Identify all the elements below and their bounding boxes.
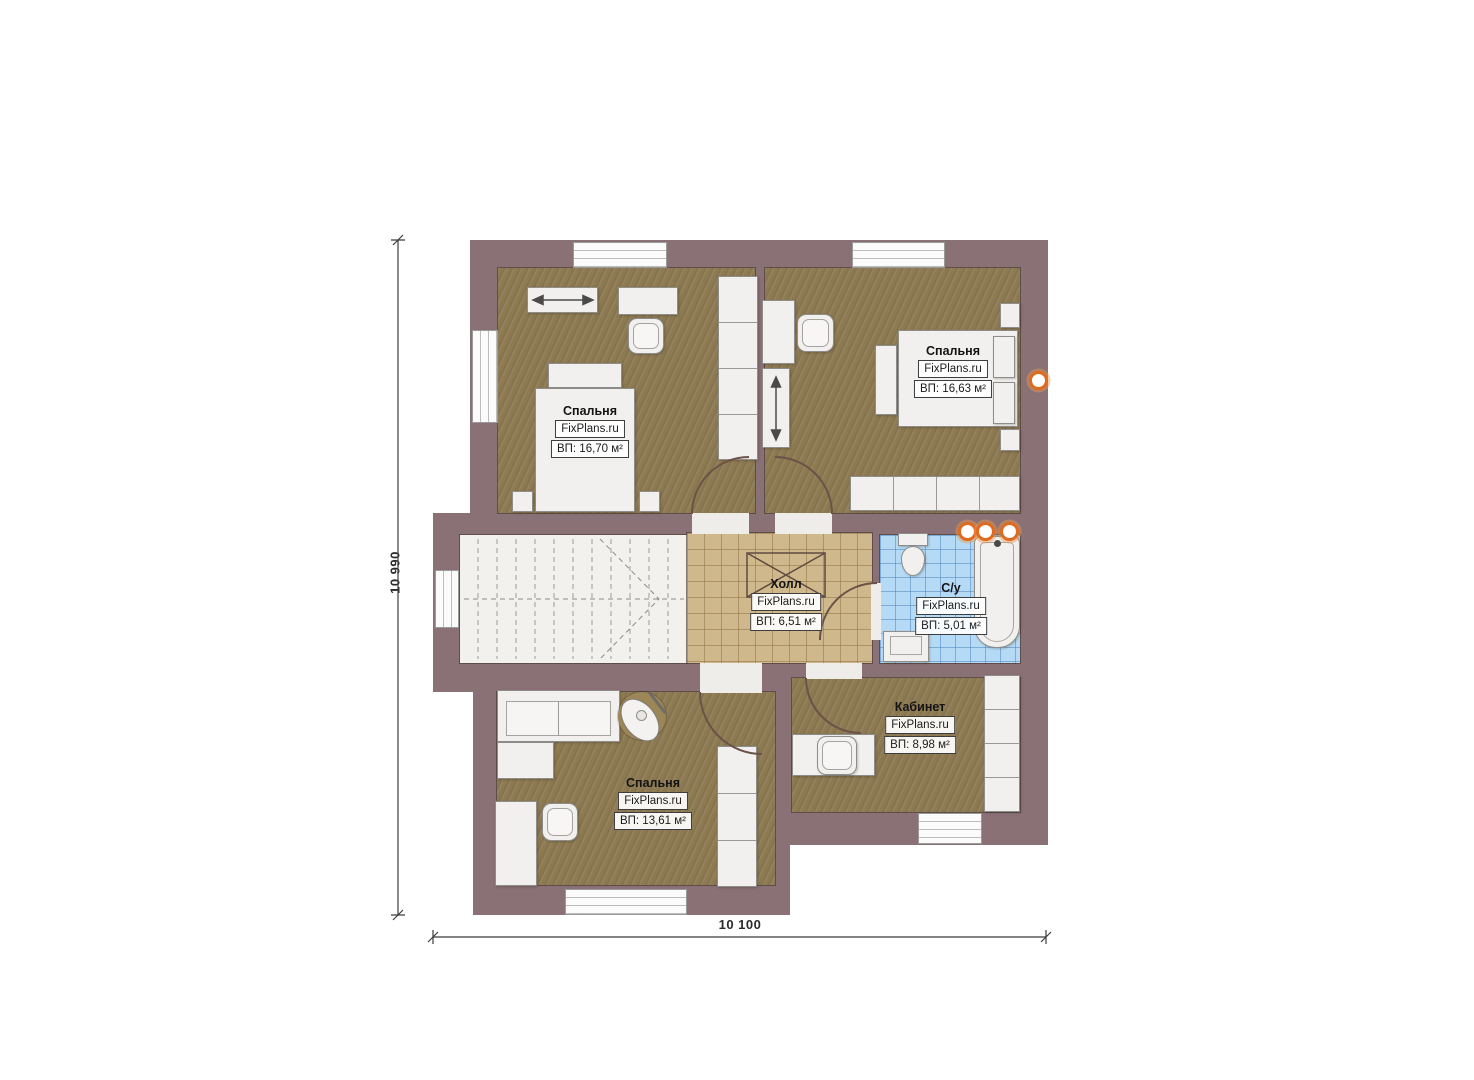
room-name: Спальня — [563, 404, 617, 418]
room-label-bedroom-top-right: Спальня FixPlans.ru ВП: 16,63 м² — [914, 344, 992, 398]
area-tag: ВП: 16,63 м² — [914, 380, 992, 398]
light-icon — [1029, 371, 1048, 390]
room-label-bathroom: С/у FixPlans.ru ВП: 5,01 м² — [915, 581, 987, 635]
door-arc — [820, 583, 877, 640]
door-arc — [700, 692, 762, 754]
area-tag: ВП: 8,98 м² — [884, 736, 956, 754]
brand-tag: FixPlans.ru — [916, 597, 986, 615]
brand-tag: FixPlans.ru — [918, 360, 988, 378]
door-arc — [806, 678, 861, 733]
area-tag: ВП: 6,51 м² — [750, 613, 822, 631]
staircase-treads — [464, 539, 684, 659]
light-icon — [958, 522, 977, 541]
room-label-office: Кабинет FixPlans.ru ВП: 8,98 м² — [884, 700, 956, 754]
door-arc — [692, 457, 749, 514]
light-icon — [976, 522, 995, 541]
brand-tag: FixPlans.ru — [885, 716, 955, 734]
brand-tag: FixPlans.ru — [555, 420, 625, 438]
room-label-hall: Холл FixPlans.ru ВП: 6,51 м² — [750, 577, 822, 631]
room-name: Холл — [770, 577, 801, 591]
floor-plan: Спальня FixPlans.ru ВП: 16,70 м² Спальня… — [0, 0, 1474, 1080]
door-arc — [775, 457, 832, 514]
area-tag: ВП: 16,70 м² — [551, 440, 629, 458]
room-label-bedroom-bottom: Спальня FixPlans.ru ВП: 13,61 м² — [614, 776, 692, 830]
room-name: Спальня — [926, 344, 980, 358]
room-label-bedroom-top-left: Спальня FixPlans.ru ВП: 16,70 м² — [551, 404, 629, 458]
room-name: Кабинет — [895, 700, 946, 714]
brand-tag: FixPlans.ru — [751, 593, 821, 611]
room-name: С/у — [941, 581, 960, 595]
area-tag: ВП: 13,61 м² — [614, 812, 692, 830]
brand-tag: FixPlans.ru — [618, 792, 688, 810]
light-icon — [1000, 522, 1019, 541]
plan-linework — [0, 0, 1474, 1080]
room-name: Спальня — [626, 776, 680, 790]
area-tag: ВП: 5,01 м² — [915, 617, 987, 635]
